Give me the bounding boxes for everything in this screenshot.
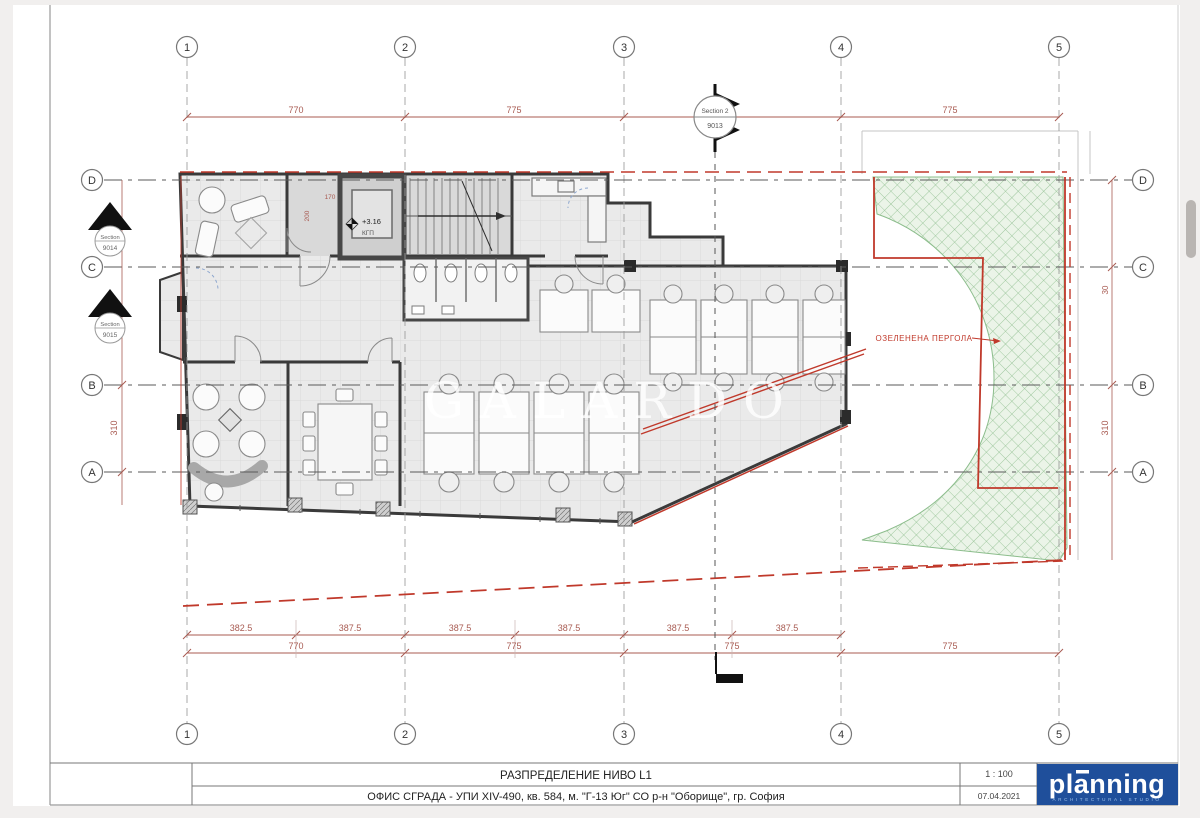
grid-col-label: 4 — [838, 42, 844, 54]
scale-value: 1 : 100 — [985, 769, 1013, 779]
pergola-label: ОЗЕЛЕНЕНА ПЕРГОЛА — [876, 334, 973, 343]
logo-subtext: ARCHITECTURAL STUDIO — [1053, 797, 1162, 802]
dim-label: 775 — [506, 641, 521, 651]
grid-row-label: B — [88, 380, 95, 392]
grid-col-label: 3 — [621, 42, 627, 54]
grid-row-label: B — [1139, 380, 1146, 392]
level-sub-text: КГП — [362, 230, 374, 237]
section-label: 9013 — [707, 123, 723, 130]
dim-label: 200 — [304, 210, 311, 221]
drawing-title: РАЗПРЕДЕЛЕНИЕ НИВО L1 — [500, 770, 652, 782]
section-label: Section — [100, 322, 119, 328]
grid-col-label: 3 — [621, 729, 627, 741]
title-block: РАЗПРЕДЕЛЕНИЕ НИВО L1 ОФИС СГРАДА - УПИ … — [50, 763, 1178, 805]
dim-label: 387.5 — [667, 623, 690, 633]
dim-label: 775 — [942, 641, 957, 651]
dim-label: 387.5 — [776, 623, 799, 633]
studio-logo: planning ARCHITECTURAL STUDIO — [1037, 764, 1178, 805]
dim-label: 310 — [1100, 420, 1110, 435]
section-marker-left-lower: Section 9015 — [88, 289, 132, 343]
dim-label: 387.5 — [449, 623, 472, 633]
pergola-area — [862, 177, 1067, 561]
dim-label: 387.5 — [558, 623, 581, 633]
grid-row-label: D — [88, 175, 96, 187]
grid-col-label: 4 — [838, 729, 844, 741]
grid-col-label: 1 — [184, 42, 190, 54]
section-label: 9015 — [103, 332, 118, 339]
dim-label: 775 — [942, 105, 957, 115]
viewer-margin-top — [0, 0, 1200, 5]
viewer-margin-left — [0, 0, 13, 818]
logo-accent-bar — [1076, 770, 1089, 774]
floor-plan-sheet: 1 2 3 4 5 1 2 3 4 5 D C B A D C B A 770 … — [0, 0, 1200, 818]
grid-col-label: 5 — [1056, 42, 1062, 54]
section-label: Section — [100, 235, 119, 241]
section-label: 9014 — [103, 245, 118, 252]
grid-row-label: C — [88, 262, 96, 274]
section-marker-left-upper: Section 9014 — [88, 202, 132, 256]
dim-label: 310 — [109, 420, 119, 435]
logo-text: planning — [1049, 769, 1165, 799]
scrollbar-thumb[interactable] — [1186, 200, 1196, 258]
grid-row-label: D — [1139, 175, 1147, 187]
level-text: +3.16 — [362, 217, 381, 226]
scrollbar-track[interactable] — [1180, 0, 1200, 818]
project-title: ОФИС СГРАДА - УПИ XIV-490, кв. 584, м. "… — [367, 791, 784, 803]
grid-col-label: 5 — [1056, 729, 1062, 741]
dim-label: 382.5 — [230, 623, 253, 633]
dim-label: 775 — [724, 641, 739, 651]
dim-label: 770 — [288, 641, 303, 651]
dim-label: 775 — [506, 105, 521, 115]
grid-row-label: A — [1139, 467, 1147, 479]
grid-row-label: A — [88, 467, 96, 479]
grid-row-label: C — [1139, 262, 1147, 274]
drawing-viewer: 1 2 3 4 5 1 2 3 4 5 D C B A D C B A 770 … — [0, 0, 1200, 818]
dim-label: 770 — [288, 105, 303, 115]
watermark: GALARDO — [424, 372, 800, 430]
grid-col-label: 1 — [184, 729, 190, 741]
dim-label: 170 — [325, 194, 336, 201]
dim-label: 387.5 — [339, 623, 362, 633]
viewer-margin-bottom — [0, 806, 1200, 818]
dim-label: 30 — [1101, 285, 1110, 294]
date-value: 07.04.2021 — [978, 791, 1021, 801]
grid-col-label: 2 — [402, 42, 408, 54]
section-label: Section 2 — [701, 108, 728, 115]
grid-col-label: 2 — [402, 729, 408, 741]
